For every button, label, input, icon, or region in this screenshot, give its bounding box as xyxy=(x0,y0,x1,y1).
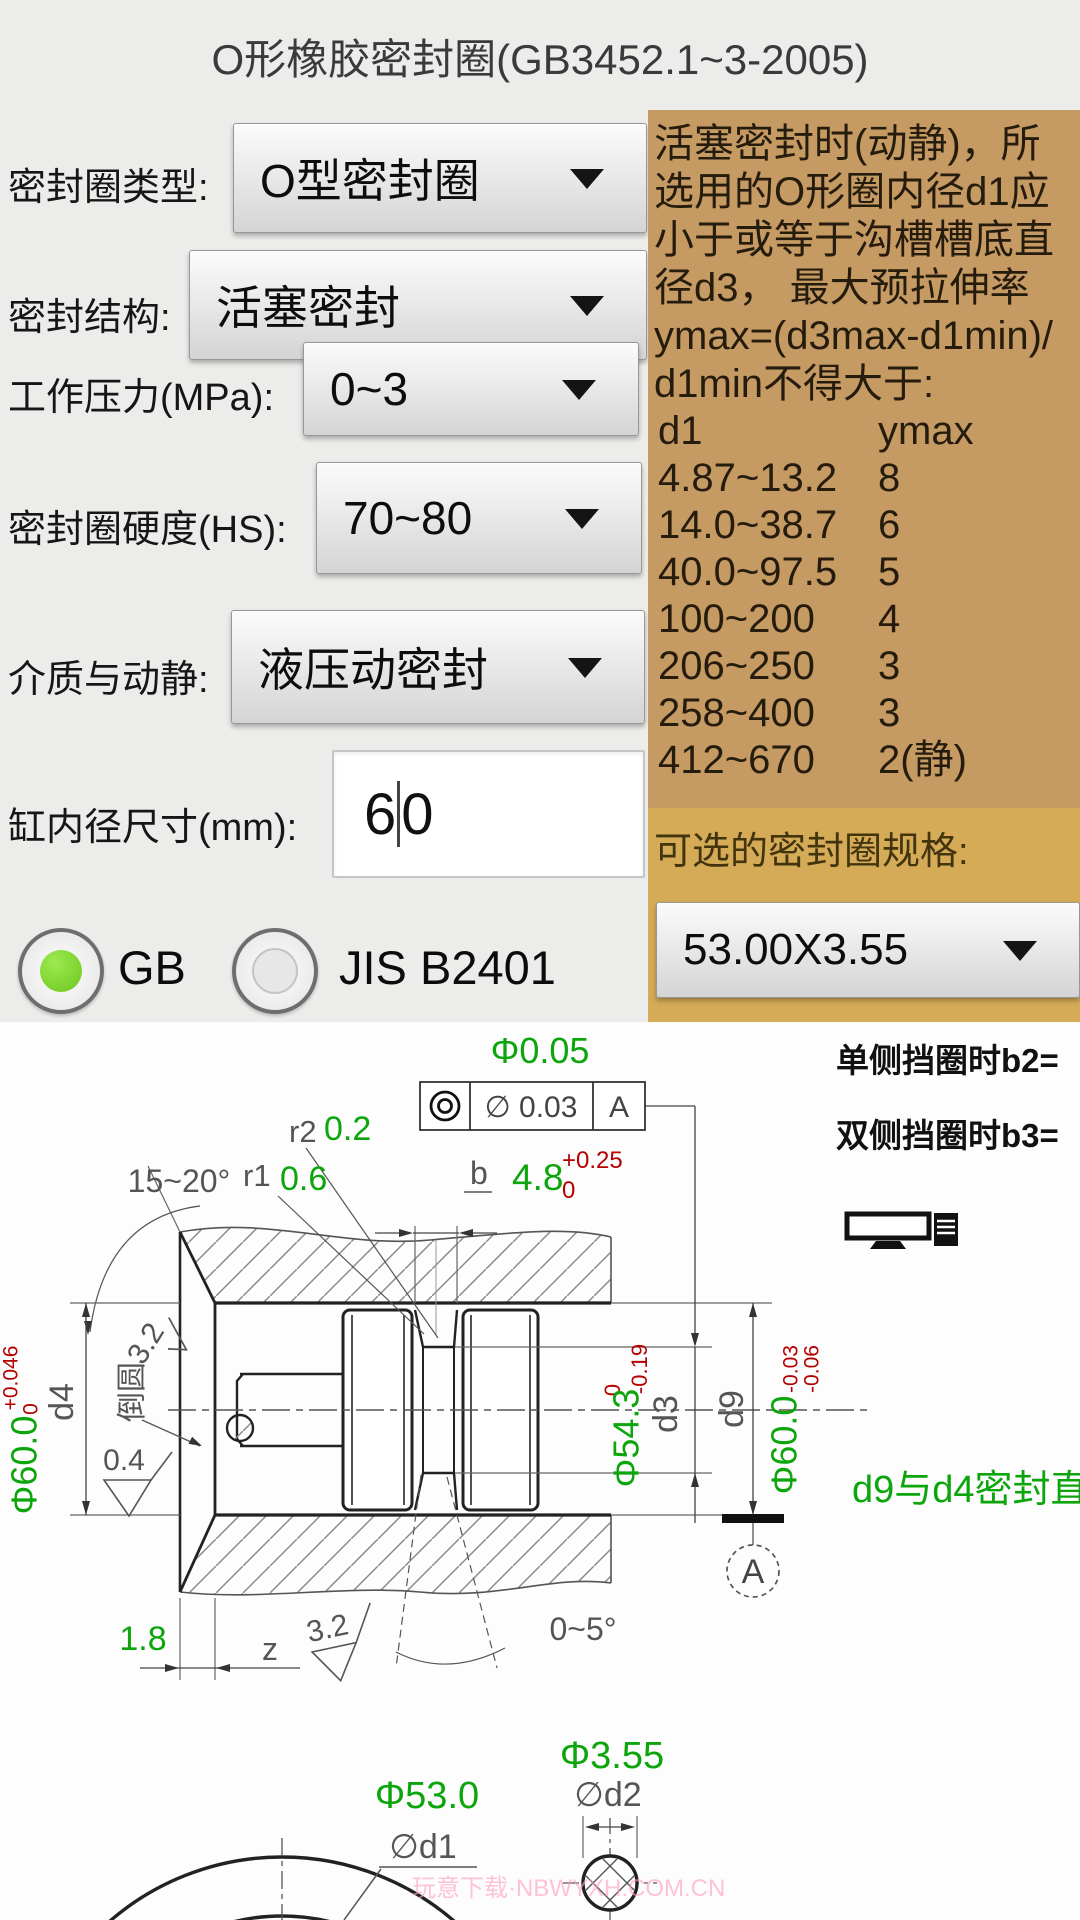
dim-b-val: 4.8 xyxy=(512,1157,563,1198)
chevron-down-icon xyxy=(1003,941,1037,961)
hardness-dropdown[interactable]: 70~80 xyxy=(316,462,642,574)
radio-gb[interactable] xyxy=(18,928,104,1014)
bore-diameter-input[interactable]: 60 xyxy=(332,750,645,878)
dim-d9-tol-up: -0.03 xyxy=(780,1345,803,1393)
radio-jis-label: JIS B2401 xyxy=(339,940,556,995)
medium-value: 液压动密封 xyxy=(232,634,488,700)
radio-selected-dot xyxy=(40,950,82,992)
hardness-value: 70~80 xyxy=(317,491,472,545)
field-label-hardness: 密封圈硬度(HS): xyxy=(8,498,287,553)
dim-d9-tol-dn: -0.06 xyxy=(801,1345,824,1393)
dim-z: z xyxy=(262,1631,278,1667)
rod-end-ball xyxy=(227,1415,253,1441)
chevron-down-icon xyxy=(562,380,596,400)
dim-r1: r1 xyxy=(243,1158,271,1193)
dim-d4-tol-up: +0.046 xyxy=(0,1346,23,1411)
note-single-backup-ring: 单侧挡圈时b2= xyxy=(836,1042,1059,1079)
dim-r2: r2 xyxy=(289,1114,317,1149)
dim-d4-tol-dn: 0 xyxy=(20,1403,43,1415)
seal-structure-value: 活塞密封 xyxy=(190,272,400,338)
field-label-seal-type: 密封圈类型: xyxy=(8,156,209,211)
table-row: 4.87~13.28 xyxy=(648,455,1080,502)
dim-b-tol-up: +0.25 xyxy=(562,1147,623,1174)
chevron-down-icon xyxy=(570,296,604,316)
dim-entry-angle: 15~20° xyxy=(128,1163,231,1199)
info-text-line: 小于或等于沟槽槽底直 xyxy=(648,216,1080,264)
seal-type-dropdown[interactable]: O型密封圈 xyxy=(233,123,647,233)
info-text-line: 选用的O形圈内径d1应 xyxy=(648,168,1080,216)
computer-icon xyxy=(847,1213,958,1249)
app-title: O形橡胶密封圈(GB3452.1~3-2005) xyxy=(0,26,1080,87)
field-label-bore-diameter: 缸内径尺寸(mm): xyxy=(8,796,297,851)
seal-type-value: O型密封圈 xyxy=(234,145,480,211)
dim-runout: Φ0.05 xyxy=(491,1030,590,1071)
table-row: 100~2004 xyxy=(648,596,1080,643)
ymax-table-header: d1ymax xyxy=(648,408,1080,455)
table-row: 258~4003 xyxy=(648,690,1080,737)
note-seal-diameters: d9与d4密封直径 xyxy=(852,1469,1080,1511)
dim-d1: ∅d1 xyxy=(389,1828,456,1866)
field-label-seal-structure: 密封结构: xyxy=(8,286,171,341)
roughness-bore: 0.4 xyxy=(103,1444,172,1516)
dim-d3: d3 xyxy=(647,1395,685,1433)
watermark: 玩意下载·NBWYXH.COM.CN xyxy=(412,1875,725,1902)
field-label-pressure: 工作压力(MPa): xyxy=(8,366,274,421)
info-text-line: 径d3， 最大预拉伸率 xyxy=(648,264,1080,312)
radio-jis[interactable] xyxy=(232,928,318,1014)
pressure-value: 0~3 xyxy=(304,362,408,416)
svg-text:0.4: 0.4 xyxy=(103,1444,145,1477)
gdt-frame: ∅ 0.03 A xyxy=(420,1082,645,1130)
note-double-backup-ring: 双侧挡圈时b3= xyxy=(836,1117,1059,1154)
field-label-medium: 介质与动静: xyxy=(8,648,209,703)
cylinder-top-section xyxy=(180,1227,611,1303)
spec-value: 53.00X3.55 xyxy=(657,925,908,975)
pressure-dropdown[interactable]: 0~3 xyxy=(303,342,639,436)
table-row: 206~2503 xyxy=(648,643,1080,690)
chevron-down-icon xyxy=(570,169,604,189)
info-panel: 活塞密封时(动静)，所 选用的O形圈内径d1应 小于或等于沟槽槽底直 径d3， … xyxy=(648,110,1080,808)
datum-target-bar xyxy=(722,1514,784,1523)
dim-d9-dia: Φ60.0 xyxy=(764,1396,805,1495)
dim-d3-dia: Φ54.3 xyxy=(606,1389,647,1488)
cylinder-bottom-section xyxy=(180,1515,611,1595)
dim-1-8: 1.8 xyxy=(119,1620,166,1658)
dim-d4: d4 xyxy=(43,1383,81,1421)
roughness-groove: 3.2 xyxy=(304,1603,385,1686)
dim-d4-dia: Φ60.0 xyxy=(4,1416,45,1515)
svg-text:3.2: 3.2 xyxy=(304,1608,352,1649)
technical-drawing: ∅ 0.03 A A 3.2 0.4 3.2 Φ0.05 r2 0.2 15~2… xyxy=(0,1022,1080,1920)
chevron-down-icon xyxy=(565,509,599,529)
gdt-datum-ref: A xyxy=(609,1091,629,1124)
note-chamfer: 倒圆 xyxy=(116,1362,149,1422)
table-row: 14.0~38.76 xyxy=(648,502,1080,549)
gdt-tolerance: ∅ 0.03 xyxy=(485,1091,578,1124)
datum-label: A xyxy=(742,1553,765,1591)
dim-d9: d9 xyxy=(713,1390,751,1428)
chevron-down-icon xyxy=(568,658,602,678)
bore-diameter-value: 60 xyxy=(334,781,434,848)
dim-d1-dia: Φ53.0 xyxy=(375,1775,479,1817)
info-text-line: ymax=(d3max-d1min)/ xyxy=(648,312,1080,360)
table-row: 40.0~97.55 xyxy=(648,549,1080,596)
dim-b: b xyxy=(470,1155,488,1191)
spec-label: 可选的密封圈规格: xyxy=(654,820,969,875)
table-row: 412~6702(静) xyxy=(648,737,1080,784)
radio-unselected-dot xyxy=(252,948,298,994)
dim-groove-angle: 0~5° xyxy=(549,1611,616,1647)
dim-d3-tol-dn: -0.19 xyxy=(627,1344,652,1394)
dim-r1-val: 0.6 xyxy=(280,1160,327,1198)
groove-drawing-svg: ∅ 0.03 A A 3.2 0.4 3.2 Φ0.05 r2 0.2 15~2… xyxy=(0,1022,1080,1920)
dim-b-tol-dn: 0 xyxy=(562,1177,575,1204)
medium-dropdown[interactable]: 液压动密封 xyxy=(231,610,645,724)
dim-r2-val: 0.2 xyxy=(324,1110,371,1148)
dim-d2: ∅d2 xyxy=(574,1776,641,1814)
dim-d2-dia: Φ3.55 xyxy=(560,1735,664,1777)
text-cursor xyxy=(397,781,400,847)
spec-dropdown[interactable]: 53.00X3.55 xyxy=(656,902,1080,998)
info-text-line: 活塞密封时(动静)，所 xyxy=(648,120,1080,168)
info-text-line: d1min不得大于: xyxy=(648,360,1080,408)
radio-gb-label: GB xyxy=(118,940,186,995)
